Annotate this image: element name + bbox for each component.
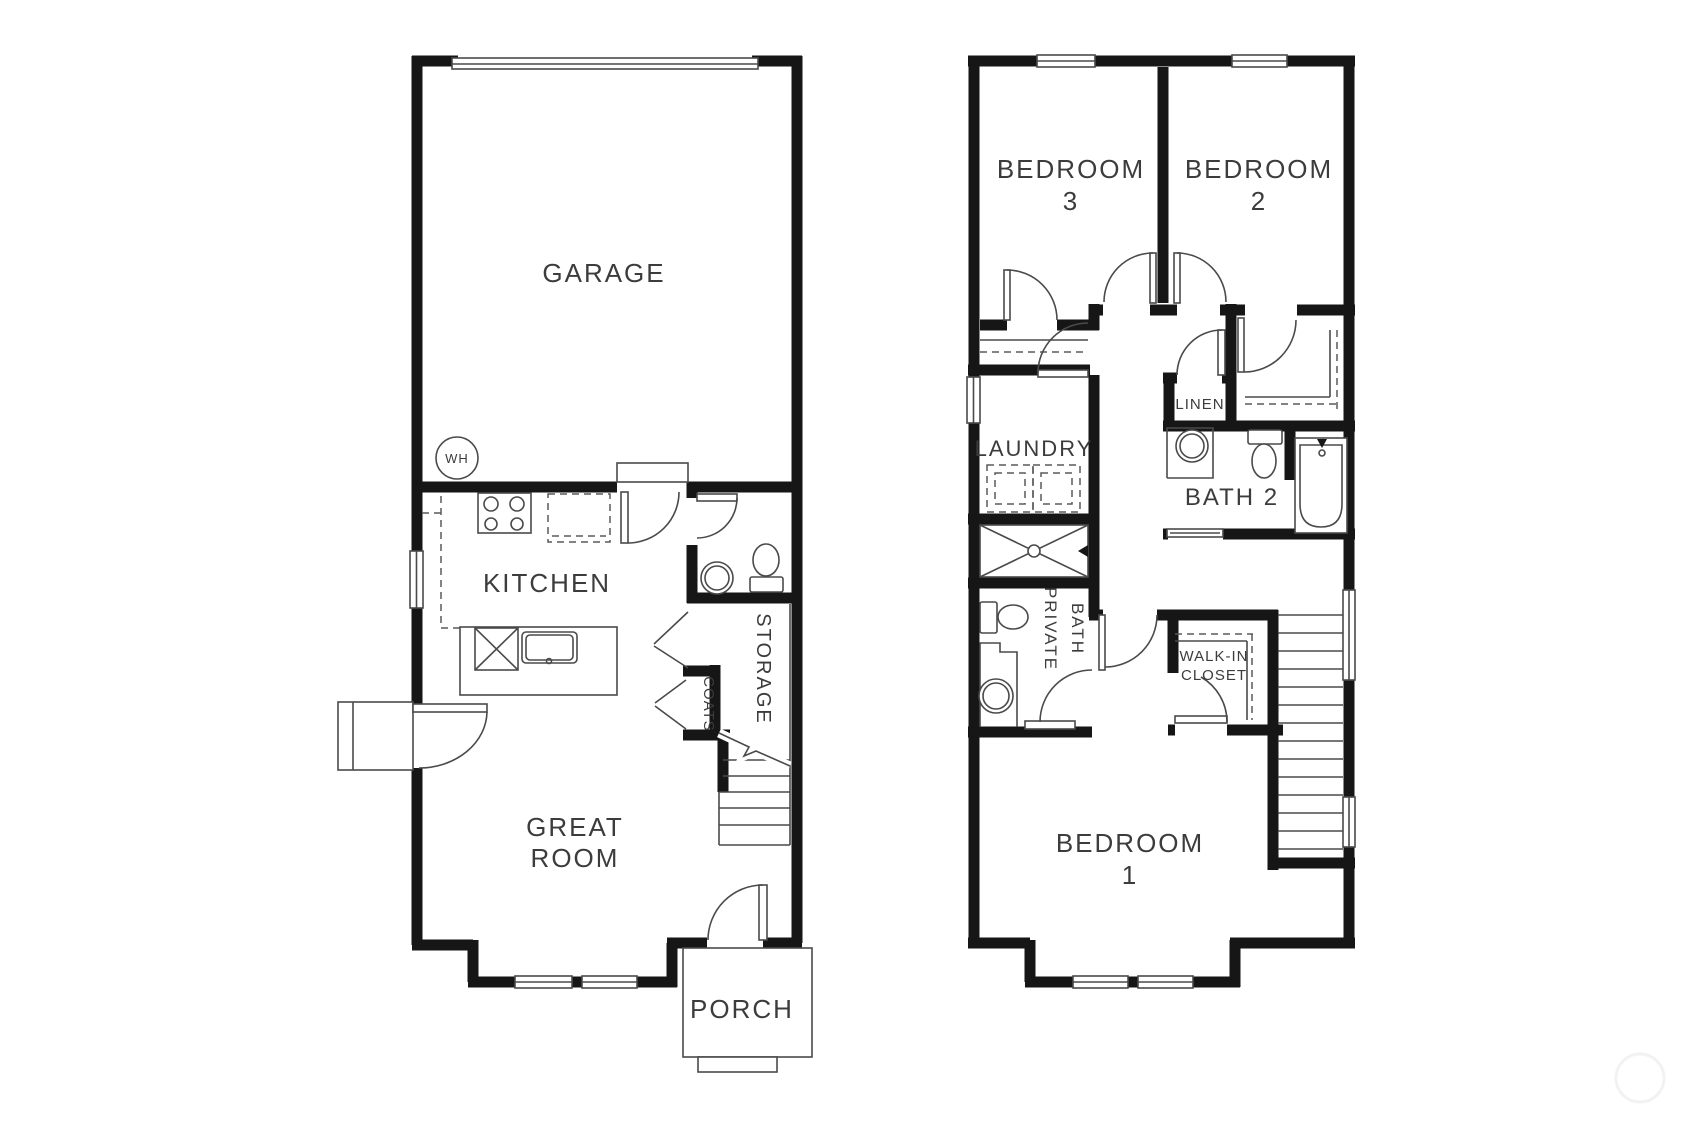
room-label-laundry: LAUNDRY — [975, 436, 1094, 461]
private-bath-shower — [980, 525, 1088, 577]
bedroom2-door — [1174, 253, 1226, 303]
room-label-walkin-1: WALK-IN — [1180, 648, 1249, 665]
room-label-storage: STORAGE — [752, 613, 774, 724]
kitchen-refrigerator — [548, 494, 610, 542]
powder-room-door — [697, 494, 737, 538]
second-floor-plan: BEDROOM 3 BEDROOM 2 LAUNDRY LINEN BATH 2… — [967, 55, 1355, 988]
room-label-great-room-2: ROOM — [531, 843, 620, 873]
bedroom3-closet — [980, 270, 1088, 352]
room-label-private-bath-2: BATH — [1068, 603, 1087, 655]
storage-double-doors — [654, 612, 688, 668]
room-label-bedroom2-1: BEDROOM — [1185, 154, 1333, 184]
stairs-second-floor — [1278, 615, 1343, 849]
room-label-bedroom3-1: BEDROOM — [997, 154, 1145, 184]
bath2-tub — [1295, 438, 1347, 533]
room-label-linen: LINEN — [1175, 396, 1224, 413]
bath2-vanity — [1167, 428, 1213, 478]
room-label-private-bath-1: PRIVATE — [1041, 587, 1060, 671]
bath2-pocket-door — [1167, 529, 1223, 537]
linen-door — [1177, 330, 1225, 375]
kitchen-island — [460, 627, 617, 695]
room-label-bedroom2-2: 2 — [1251, 186, 1267, 216]
watermark-circle — [1616, 1054, 1664, 1102]
room-label-bedroom1-2: 1 — [1122, 860, 1138, 890]
private-bath-toilet — [980, 602, 1028, 633]
water-heater-label: WH — [445, 451, 469, 466]
room-label-bath2: BATH 2 — [1185, 484, 1279, 511]
room-label-porch: PORCH — [690, 994, 794, 1024]
coats-closet-doors — [655, 680, 686, 729]
room-label-bedroom3-2: 3 — [1063, 186, 1079, 216]
bedroom2-closet — [1238, 318, 1337, 410]
private-bath-vanity — [979, 643, 1017, 727]
room-label-great-room-1: GREAT — [526, 812, 624, 842]
powder-room-toilet — [750, 544, 783, 592]
kitchen-counter-dashed — [422, 496, 460, 628]
room-label-kitchen: KITCHEN — [483, 568, 611, 598]
side-door — [338, 702, 487, 770]
powder-room-sink — [701, 562, 733, 594]
private-bath-door — [1025, 670, 1092, 729]
room-label-coats: COATS — [700, 676, 717, 732]
room-label-bedroom1-1: BEDROOM — [1056, 828, 1204, 858]
garage-entry-door — [617, 463, 688, 543]
first-floor-windows — [410, 551, 637, 988]
front-door — [708, 885, 767, 940]
bedroom3-door — [1104, 253, 1156, 303]
bedroom1-door — [1099, 615, 1157, 670]
floorplan-canvas: GARAGE WH KITCHEN STORAGE COATS GREAT RO… — [0, 0, 1695, 1131]
room-label-garage: GARAGE — [542, 258, 665, 288]
first-floor-plan: GARAGE WH KITCHEN STORAGE COATS GREAT RO… — [338, 56, 812, 1072]
room-label-walkin-2: CLOSET — [1181, 667, 1247, 684]
floorplan-drawing: GARAGE WH KITCHEN STORAGE COATS GREAT RO… — [0, 0, 1695, 1131]
kitchen-stove — [478, 493, 531, 533]
garage-door — [452, 58, 758, 69]
laundry-washer-dryer — [987, 465, 1080, 512]
bath2-toilet — [1248, 430, 1282, 478]
